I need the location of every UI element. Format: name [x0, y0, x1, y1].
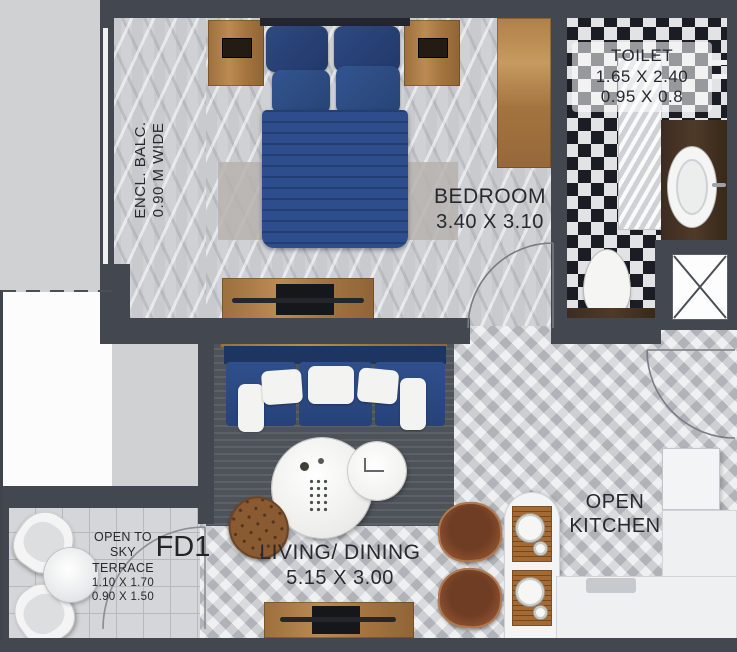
wall-bedroom-toilet [551, 14, 567, 344]
bedroom-name: BEDROOM [390, 184, 590, 210]
wall-terrace-top [0, 486, 198, 508]
sofa-cushion [357, 367, 400, 404]
shaft [672, 254, 728, 320]
living-name: LIVING/ DINING [235, 540, 445, 566]
toilet-dims-1: 1.65 X 2.40 [572, 67, 712, 88]
floor-plan: ENCL. BALC. 0.90 M WIDE BEDROOM 3.40 X 3… [0, 0, 737, 652]
wall-bedroom-living [100, 318, 470, 344]
wardrobe [497, 18, 551, 168]
room-label-living: LIVING/ DINING 5.15 X 3.00 [235, 540, 445, 590]
plate [516, 578, 544, 606]
sofa-cushion [400, 378, 426, 430]
room-label-toilet: TOILET 1.65 X 2.40 0.95 X 0.8 [572, 42, 712, 112]
balcony-name: ENCL. BALC. [132, 90, 150, 250]
balcony-dims: 0.90 M WIDE [150, 90, 168, 250]
bed-pillow [272, 70, 330, 114]
sofa-cushion [261, 369, 303, 406]
terrace-dims-1: 1.10 X 1.70 [76, 576, 170, 590]
wall-hall-top [551, 318, 661, 344]
sofa-cushion [308, 366, 354, 404]
kitchen-name-line1: OPEN [550, 490, 680, 514]
toilet-dims-2: 0.95 X 0.8 [572, 87, 712, 108]
wall-bottom [0, 638, 737, 652]
table-decor [318, 458, 324, 464]
living-dims: 5.15 X 3.00 [235, 566, 445, 590]
bed-pillow [336, 66, 400, 114]
table-tray [364, 458, 384, 472]
nightstand-right-tray [418, 38, 448, 58]
plate [516, 514, 544, 542]
nightstand-left-tray [222, 38, 252, 58]
room-label-balcony: ENCL. BALC. 0.90 M WIDE [132, 90, 172, 250]
washbasin-inner [676, 159, 708, 215]
room-label-kitchen: OPEN KITCHEN [550, 490, 680, 539]
bed-pillow [266, 26, 328, 72]
bedroom-dims: 3.40 X 3.10 [390, 210, 590, 234]
bedroom-tv-bar [232, 298, 364, 303]
toilet-name: TOILET [572, 46, 712, 67]
glass [534, 542, 547, 555]
boundary-line-left [0, 290, 3, 640]
kitchen-sink [586, 578, 636, 593]
terrace-door-label: FD1 [148, 530, 218, 565]
living-tv-bar [280, 617, 396, 622]
wall-living-left [198, 330, 214, 524]
faucet [712, 183, 726, 187]
sofa-cushion [238, 384, 264, 432]
bed-duvet [262, 110, 408, 248]
wall-top [103, 0, 737, 18]
table-decor [300, 462, 309, 471]
table-plant [308, 478, 330, 512]
glass [534, 606, 547, 619]
outside-white-area [2, 292, 112, 488]
terrace-dims-2: 0.90 X 1.50 [76, 590, 170, 604]
room-label-bedroom: BEDROOM 3.40 X 3.10 [390, 184, 590, 234]
kitchen-counter-bottom [556, 576, 737, 640]
kitchen-name-line2: KITCHEN [550, 514, 680, 538]
